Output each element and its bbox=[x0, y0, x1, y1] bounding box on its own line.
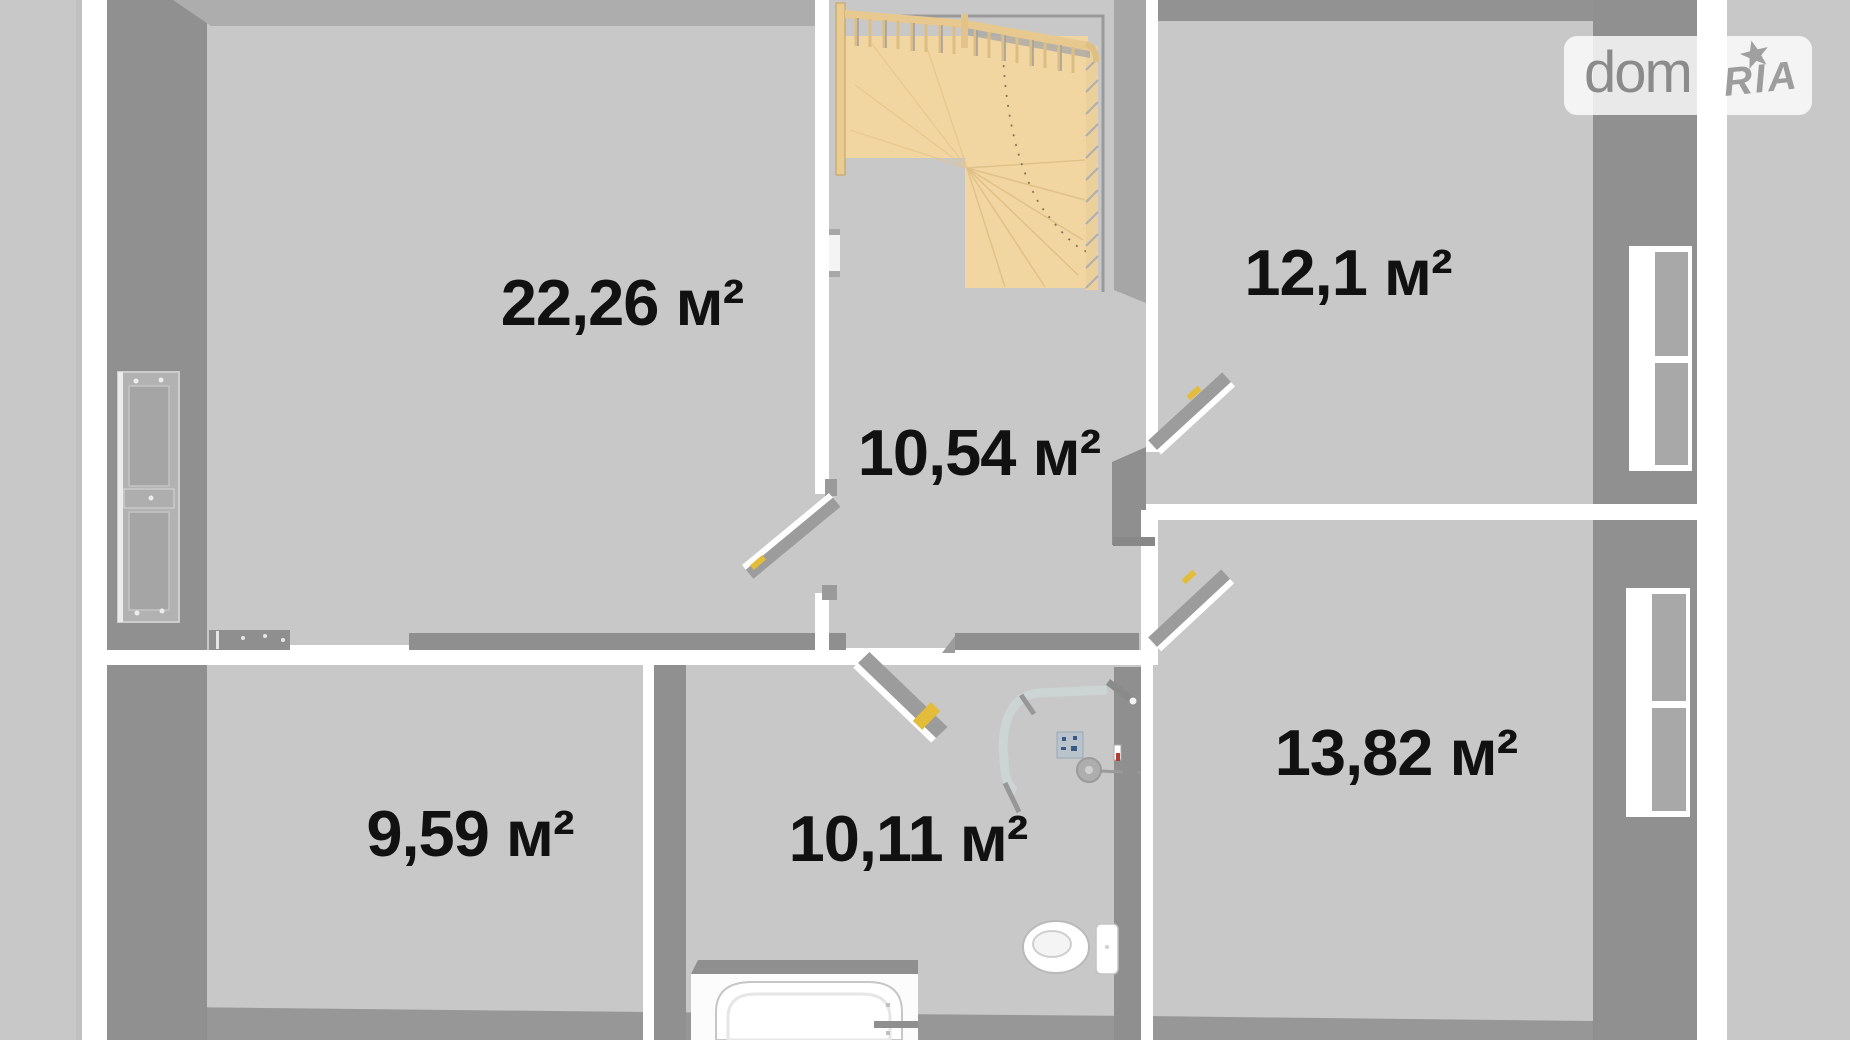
svg-text:9,59 м²: 9,59 м² bbox=[366, 797, 574, 870]
svg-text:dom: dom bbox=[1584, 40, 1691, 105]
svg-text:13,82 м²: 13,82 м² bbox=[1275, 716, 1518, 789]
svg-text:10,11 м²: 10,11 м² bbox=[789, 802, 1028, 875]
svg-text:10,54 м²: 10,54 м² bbox=[858, 416, 1101, 489]
svg-text:12,1 м²: 12,1 м² bbox=[1244, 236, 1452, 309]
svg-text:22,26 м²: 22,26 м² bbox=[501, 266, 744, 339]
